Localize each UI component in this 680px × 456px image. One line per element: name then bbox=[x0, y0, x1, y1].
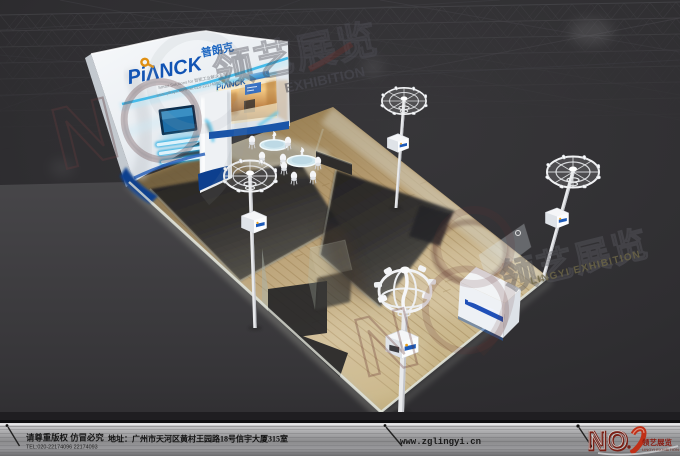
svg-text:领艺展览: 领艺展览 bbox=[642, 437, 672, 447]
svg-text:TEL:020-22174096 22174093: TEL:020-22174096 22174093 bbox=[26, 445, 98, 451]
svg-text:地址：广州市天河区黄村王园路18号信宇大厦315室: 地址：广州市天河区黄村王园路18号信宇大厦315室 bbox=[108, 434, 288, 444]
svg-text:NO: NO bbox=[587, 425, 628, 455]
svg-text:LINGYI EXHIBITION: LINGYI EXHIBITION bbox=[642, 447, 679, 452]
svg-text:请尊重版权 仿冒必究: 请尊重版权 仿冒必究 bbox=[26, 433, 104, 443]
svg-text:www.zglingyi.cn: www.zglingyi.cn bbox=[400, 437, 481, 447]
